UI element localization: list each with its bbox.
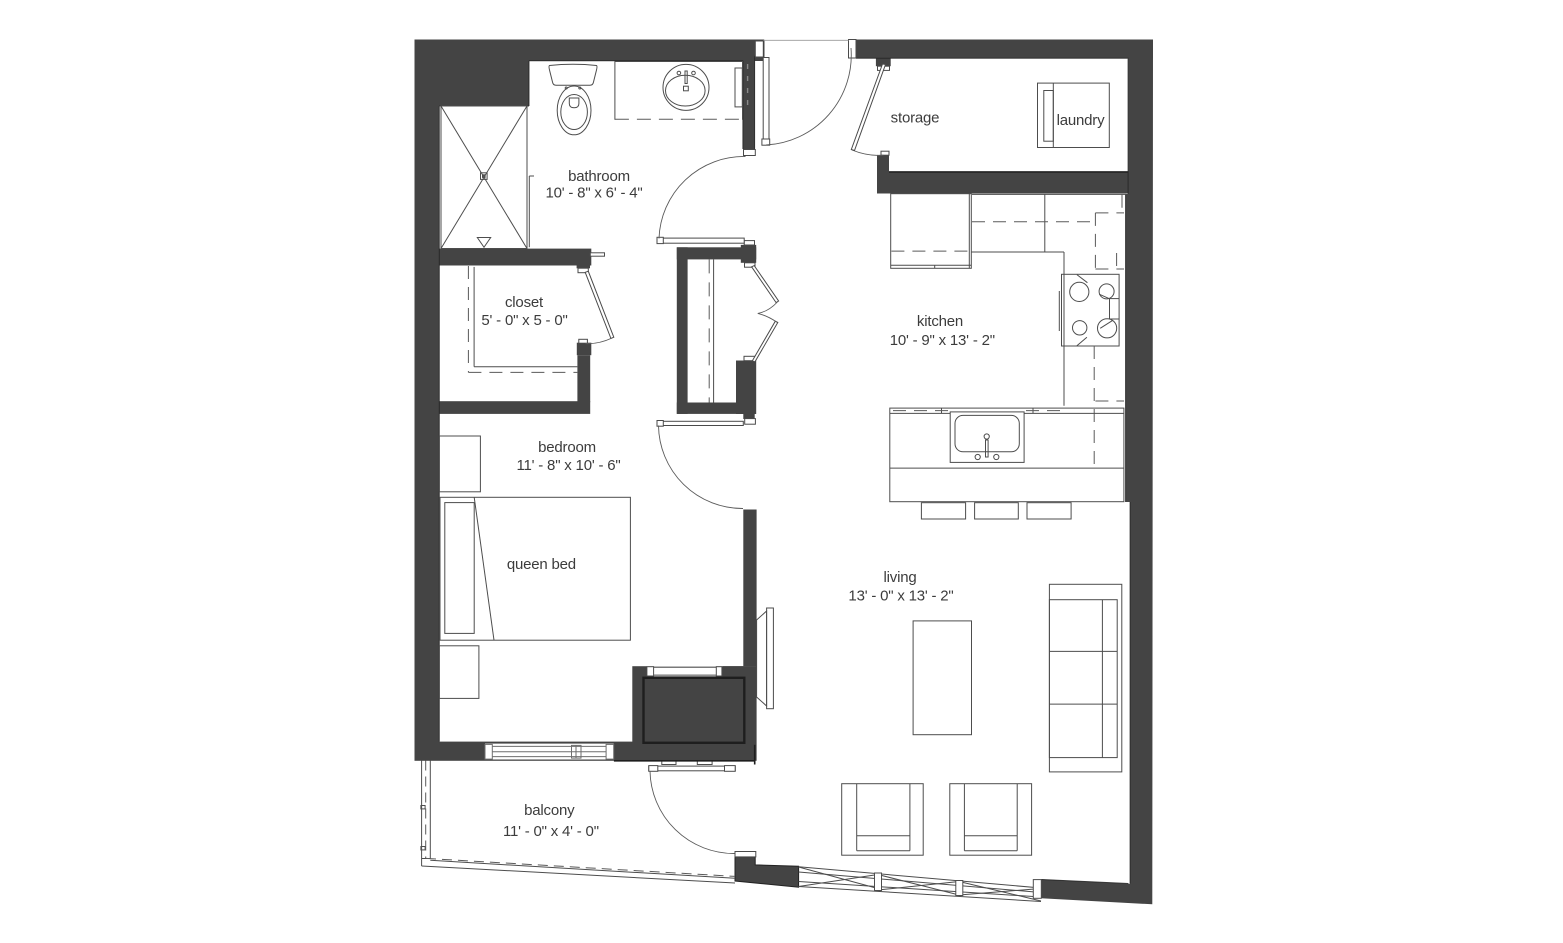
svg-text:balcony: balcony bbox=[524, 802, 575, 819]
svg-text:10' - 9" x 13' - 2": 10' - 9" x 13' - 2" bbox=[890, 332, 995, 349]
svg-text:living: living bbox=[884, 569, 917, 586]
svg-text:bedroom: bedroom bbox=[538, 439, 596, 456]
svg-text:5' - 0" x 5 - 0": 5' - 0" x 5 - 0" bbox=[481, 312, 567, 329]
svg-text:13' - 0" x 13' - 2": 13' - 0" x 13' - 2" bbox=[848, 588, 953, 605]
svg-text:11' - 0" x 4' - 0": 11' - 0" x 4' - 0" bbox=[503, 823, 599, 840]
svg-text:queen bed: queen bed bbox=[507, 556, 576, 573]
svg-text:11' - 8" x 10' - 6": 11' - 8" x 10' - 6" bbox=[516, 457, 620, 474]
svg-text:laundry: laundry bbox=[1057, 112, 1105, 129]
svg-text:kitchen: kitchen bbox=[917, 313, 963, 330]
svg-text:storage: storage bbox=[891, 110, 940, 127]
svg-text:10' - 8" x 6' - 4": 10' - 8" x 6' - 4" bbox=[546, 185, 643, 202]
svg-text:bathroom: bathroom bbox=[568, 168, 630, 185]
svg-text:closet: closet bbox=[505, 294, 544, 311]
